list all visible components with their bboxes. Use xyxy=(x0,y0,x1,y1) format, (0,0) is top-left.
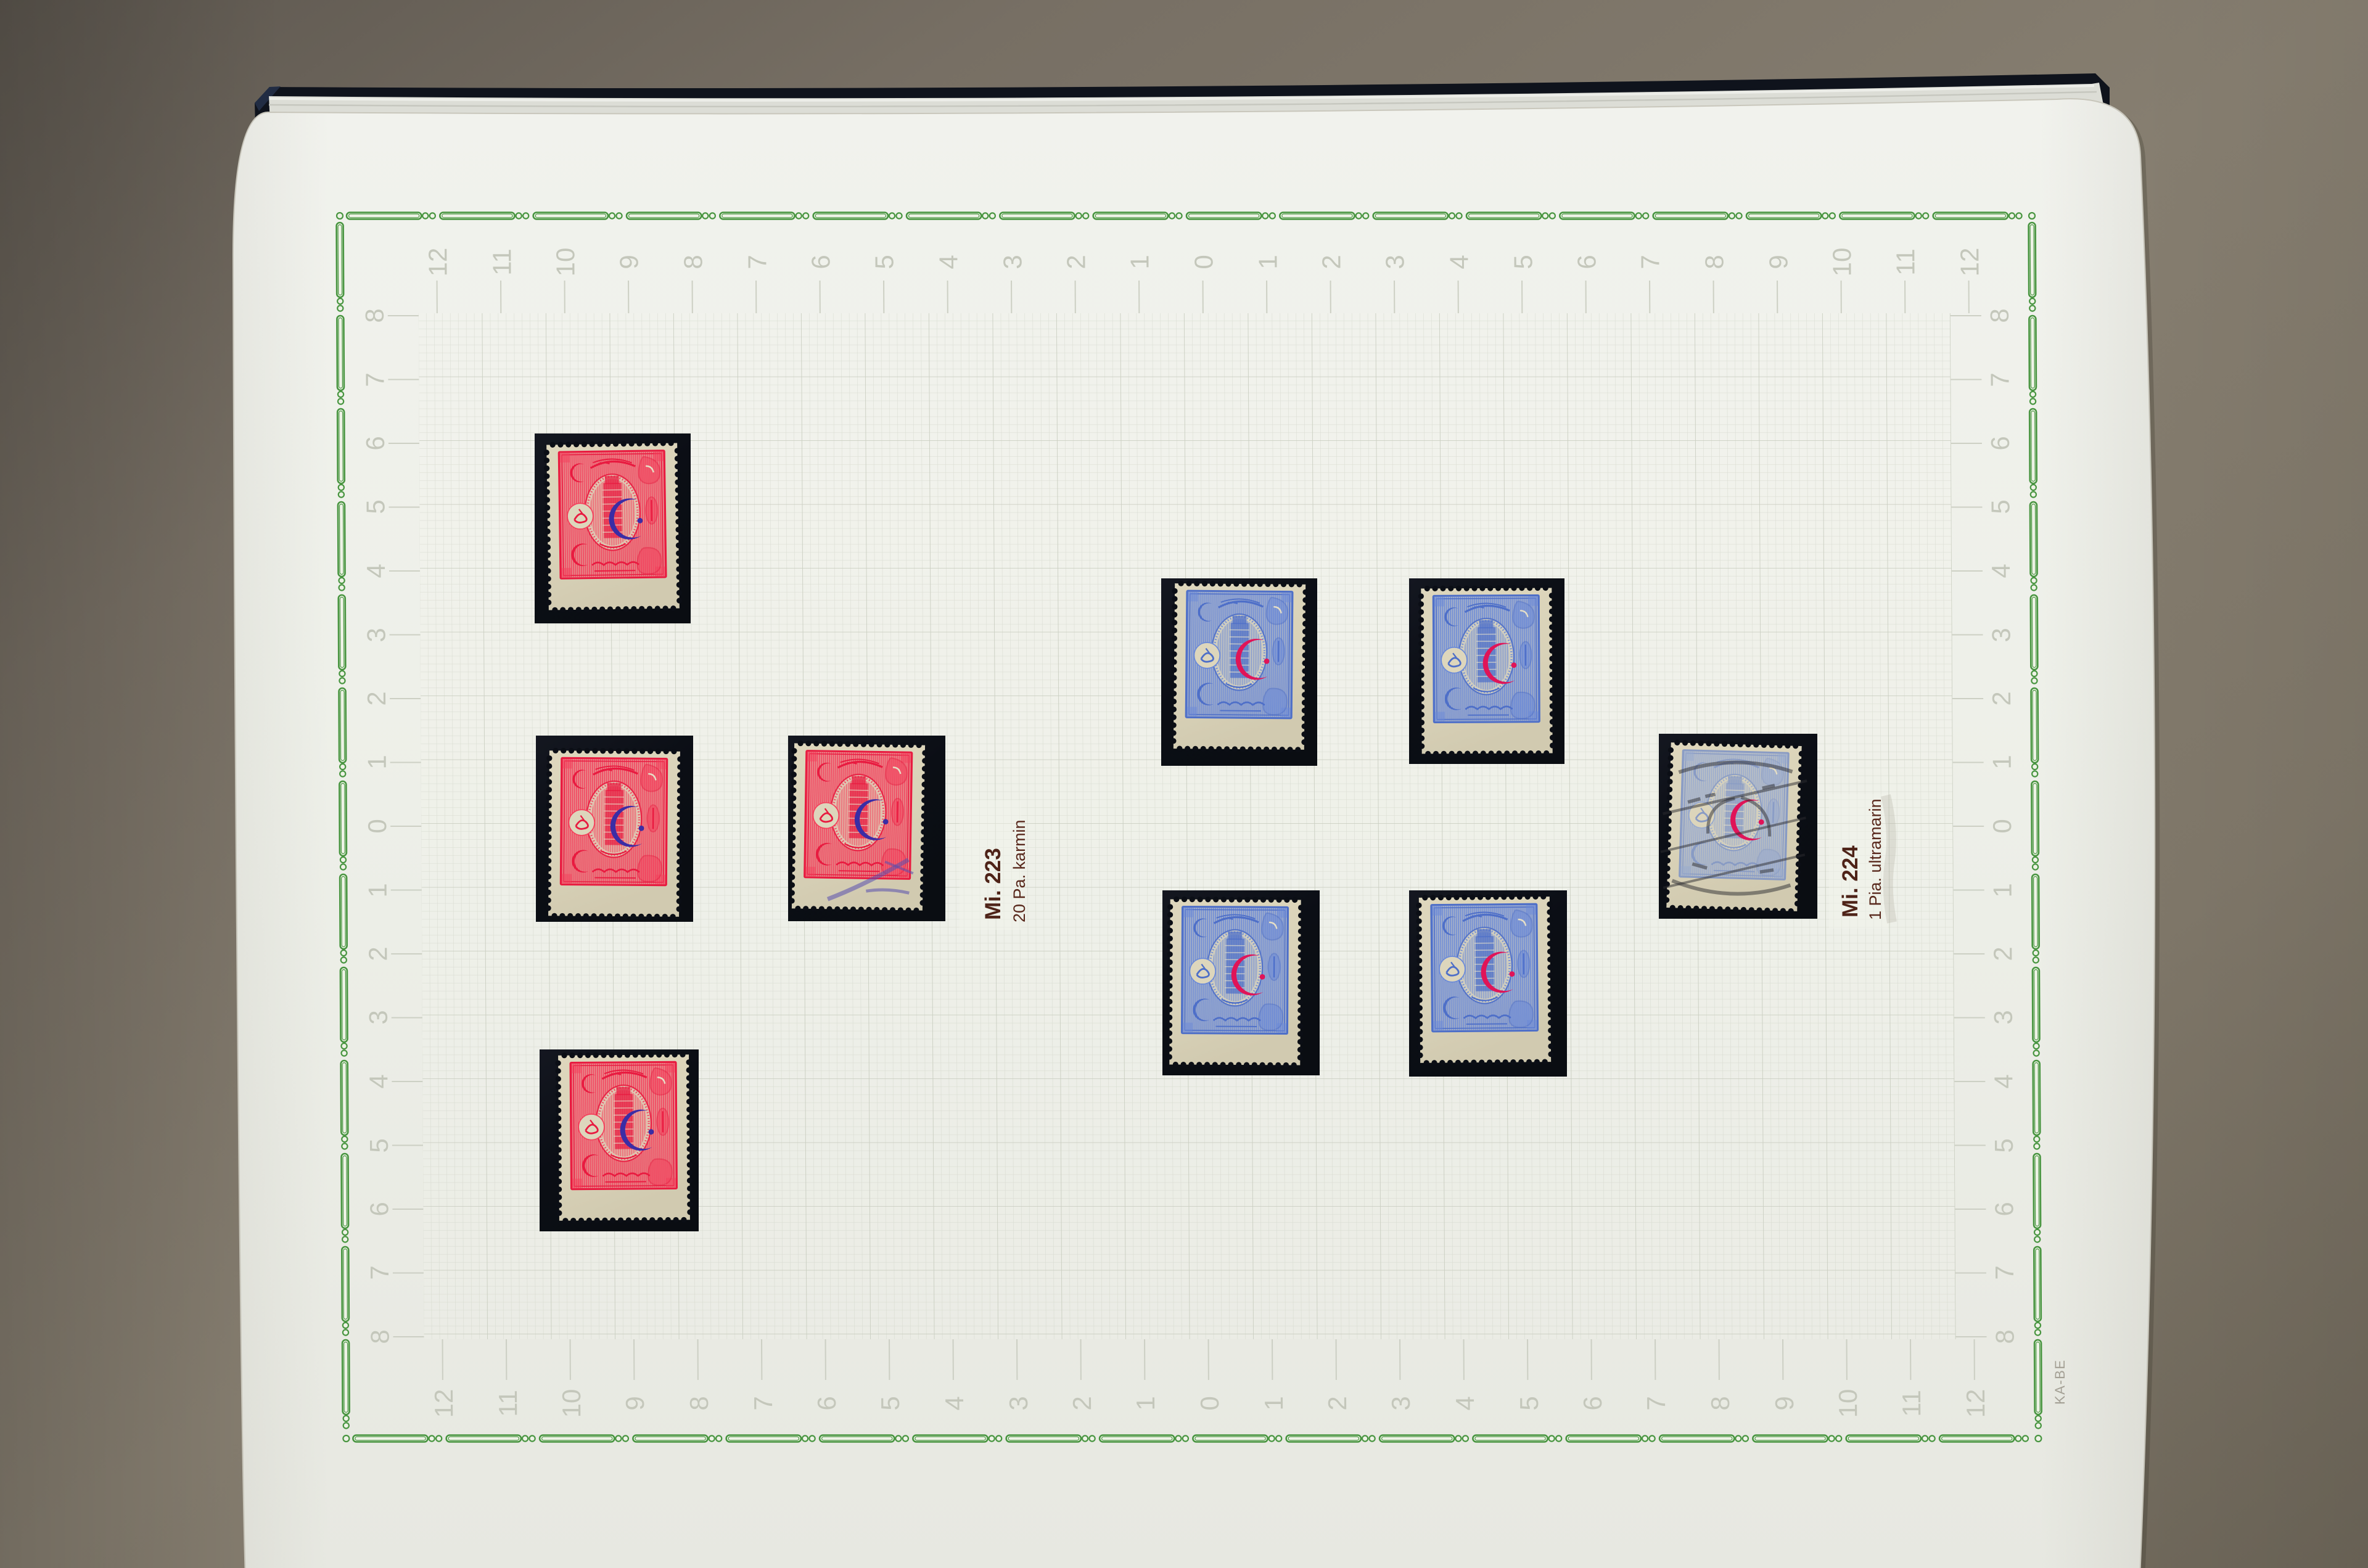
svg-text:2: 2 xyxy=(1988,946,2017,961)
svg-text:10: 10 xyxy=(551,248,580,277)
svg-text:4: 4 xyxy=(940,1396,969,1410)
svg-text:8: 8 xyxy=(684,1396,713,1410)
svg-text:4: 4 xyxy=(1444,255,1473,269)
svg-text:11: 11 xyxy=(1897,1390,1926,1417)
svg-text:12: 12 xyxy=(423,248,452,277)
svg-text:4: 4 xyxy=(361,564,390,578)
svg-text:1: 1 xyxy=(1259,1396,1288,1410)
svg-text:6: 6 xyxy=(1578,1396,1607,1410)
svg-text:6: 6 xyxy=(1989,1202,2018,1216)
svg-text:2: 2 xyxy=(1987,691,2016,705)
svg-text:3: 3 xyxy=(1386,1396,1415,1410)
svg-text:1: 1 xyxy=(363,755,392,769)
svg-text:5: 5 xyxy=(1986,499,2015,514)
svg-text:KA-BE: KA-BE xyxy=(2052,1359,2068,1405)
svg-text:5: 5 xyxy=(364,1138,393,1152)
svg-text:2: 2 xyxy=(1061,255,1090,269)
svg-text:4: 4 xyxy=(1989,1074,2018,1088)
svg-text:5: 5 xyxy=(869,255,898,269)
svg-text:9: 9 xyxy=(614,255,643,269)
svg-text:8: 8 xyxy=(678,255,707,269)
svg-text:3: 3 xyxy=(1989,1010,2018,1024)
svg-text:2: 2 xyxy=(1317,255,1346,269)
svg-text:4: 4 xyxy=(1986,564,2015,578)
svg-text:2: 2 xyxy=(362,691,391,705)
svg-text:2: 2 xyxy=(1067,1396,1096,1410)
svg-text:Mi. 223: Mi. 223 xyxy=(981,848,1005,920)
svg-text:7: 7 xyxy=(1985,372,2014,387)
svg-text:11: 11 xyxy=(1891,248,1920,276)
svg-text:8: 8 xyxy=(360,308,389,322)
svg-text:9: 9 xyxy=(620,1396,649,1410)
svg-text:20 Pa. karmin: 20 Pa. karmin xyxy=(1010,819,1029,922)
svg-text:1: 1 xyxy=(1988,883,2017,897)
svg-text:8: 8 xyxy=(1985,308,2014,322)
svg-text:3: 3 xyxy=(364,1010,393,1024)
svg-text:8: 8 xyxy=(365,1329,394,1344)
svg-text:10: 10 xyxy=(1827,248,1856,277)
svg-text:6: 6 xyxy=(364,1202,393,1216)
svg-text:4: 4 xyxy=(1450,1396,1479,1410)
svg-text:4: 4 xyxy=(934,255,963,269)
svg-text:Mi. 224: Mi. 224 xyxy=(1838,845,1862,917)
svg-text:3: 3 xyxy=(361,628,390,642)
svg-text:6: 6 xyxy=(1572,255,1601,269)
svg-text:8: 8 xyxy=(1706,1396,1735,1410)
svg-text:4: 4 xyxy=(364,1074,393,1088)
svg-text:5: 5 xyxy=(1989,1138,2018,1152)
svg-text:7: 7 xyxy=(749,1396,778,1410)
svg-text:0: 0 xyxy=(363,819,392,833)
svg-text:8: 8 xyxy=(1990,1329,2019,1344)
svg-text:12: 12 xyxy=(1961,1389,1990,1418)
svg-text:2: 2 xyxy=(363,946,392,961)
svg-text:1: 1 xyxy=(363,883,392,897)
svg-text:1: 1 xyxy=(1988,755,2016,769)
svg-text:6: 6 xyxy=(812,1396,841,1410)
svg-text:10: 10 xyxy=(557,1389,586,1418)
svg-text:0: 0 xyxy=(1195,1396,1224,1410)
svg-text:7: 7 xyxy=(742,255,771,269)
svg-text:9: 9 xyxy=(1770,1396,1799,1410)
svg-text:7: 7 xyxy=(360,372,389,387)
svg-text:11: 11 xyxy=(487,248,516,276)
svg-text:2: 2 xyxy=(1323,1396,1352,1410)
svg-text:5: 5 xyxy=(1515,1396,1544,1410)
svg-text:1: 1 xyxy=(1125,255,1154,269)
svg-text:7: 7 xyxy=(1635,255,1664,269)
svg-text:12: 12 xyxy=(1955,248,1984,277)
svg-text:7: 7 xyxy=(365,1265,394,1279)
svg-text:6: 6 xyxy=(1986,436,2015,450)
svg-text:0: 0 xyxy=(1988,819,2016,833)
svg-text:9: 9 xyxy=(1764,255,1793,269)
svg-text:7: 7 xyxy=(1990,1265,2019,1279)
svg-text:1: 1 xyxy=(1131,1396,1160,1410)
svg-text:1 Pia. ultramarin: 1 Pia. ultramarin xyxy=(1866,798,1885,920)
svg-text:12: 12 xyxy=(429,1389,458,1418)
svg-text:7: 7 xyxy=(1642,1396,1671,1410)
svg-text:5: 5 xyxy=(876,1396,905,1410)
svg-text:3: 3 xyxy=(998,255,1027,269)
svg-text:10: 10 xyxy=(1833,1389,1862,1418)
svg-text:3: 3 xyxy=(1986,628,2015,642)
svg-text:3: 3 xyxy=(1004,1396,1033,1410)
svg-text:5: 5 xyxy=(361,499,390,514)
svg-text:1: 1 xyxy=(1253,255,1282,269)
svg-text:6: 6 xyxy=(806,255,835,269)
svg-text:5: 5 xyxy=(1508,255,1537,269)
svg-text:3: 3 xyxy=(1380,255,1409,269)
svg-text:6: 6 xyxy=(361,436,390,450)
svg-text:8: 8 xyxy=(1700,255,1729,269)
svg-text:11: 11 xyxy=(493,1390,522,1417)
svg-text:0: 0 xyxy=(1189,255,1218,269)
